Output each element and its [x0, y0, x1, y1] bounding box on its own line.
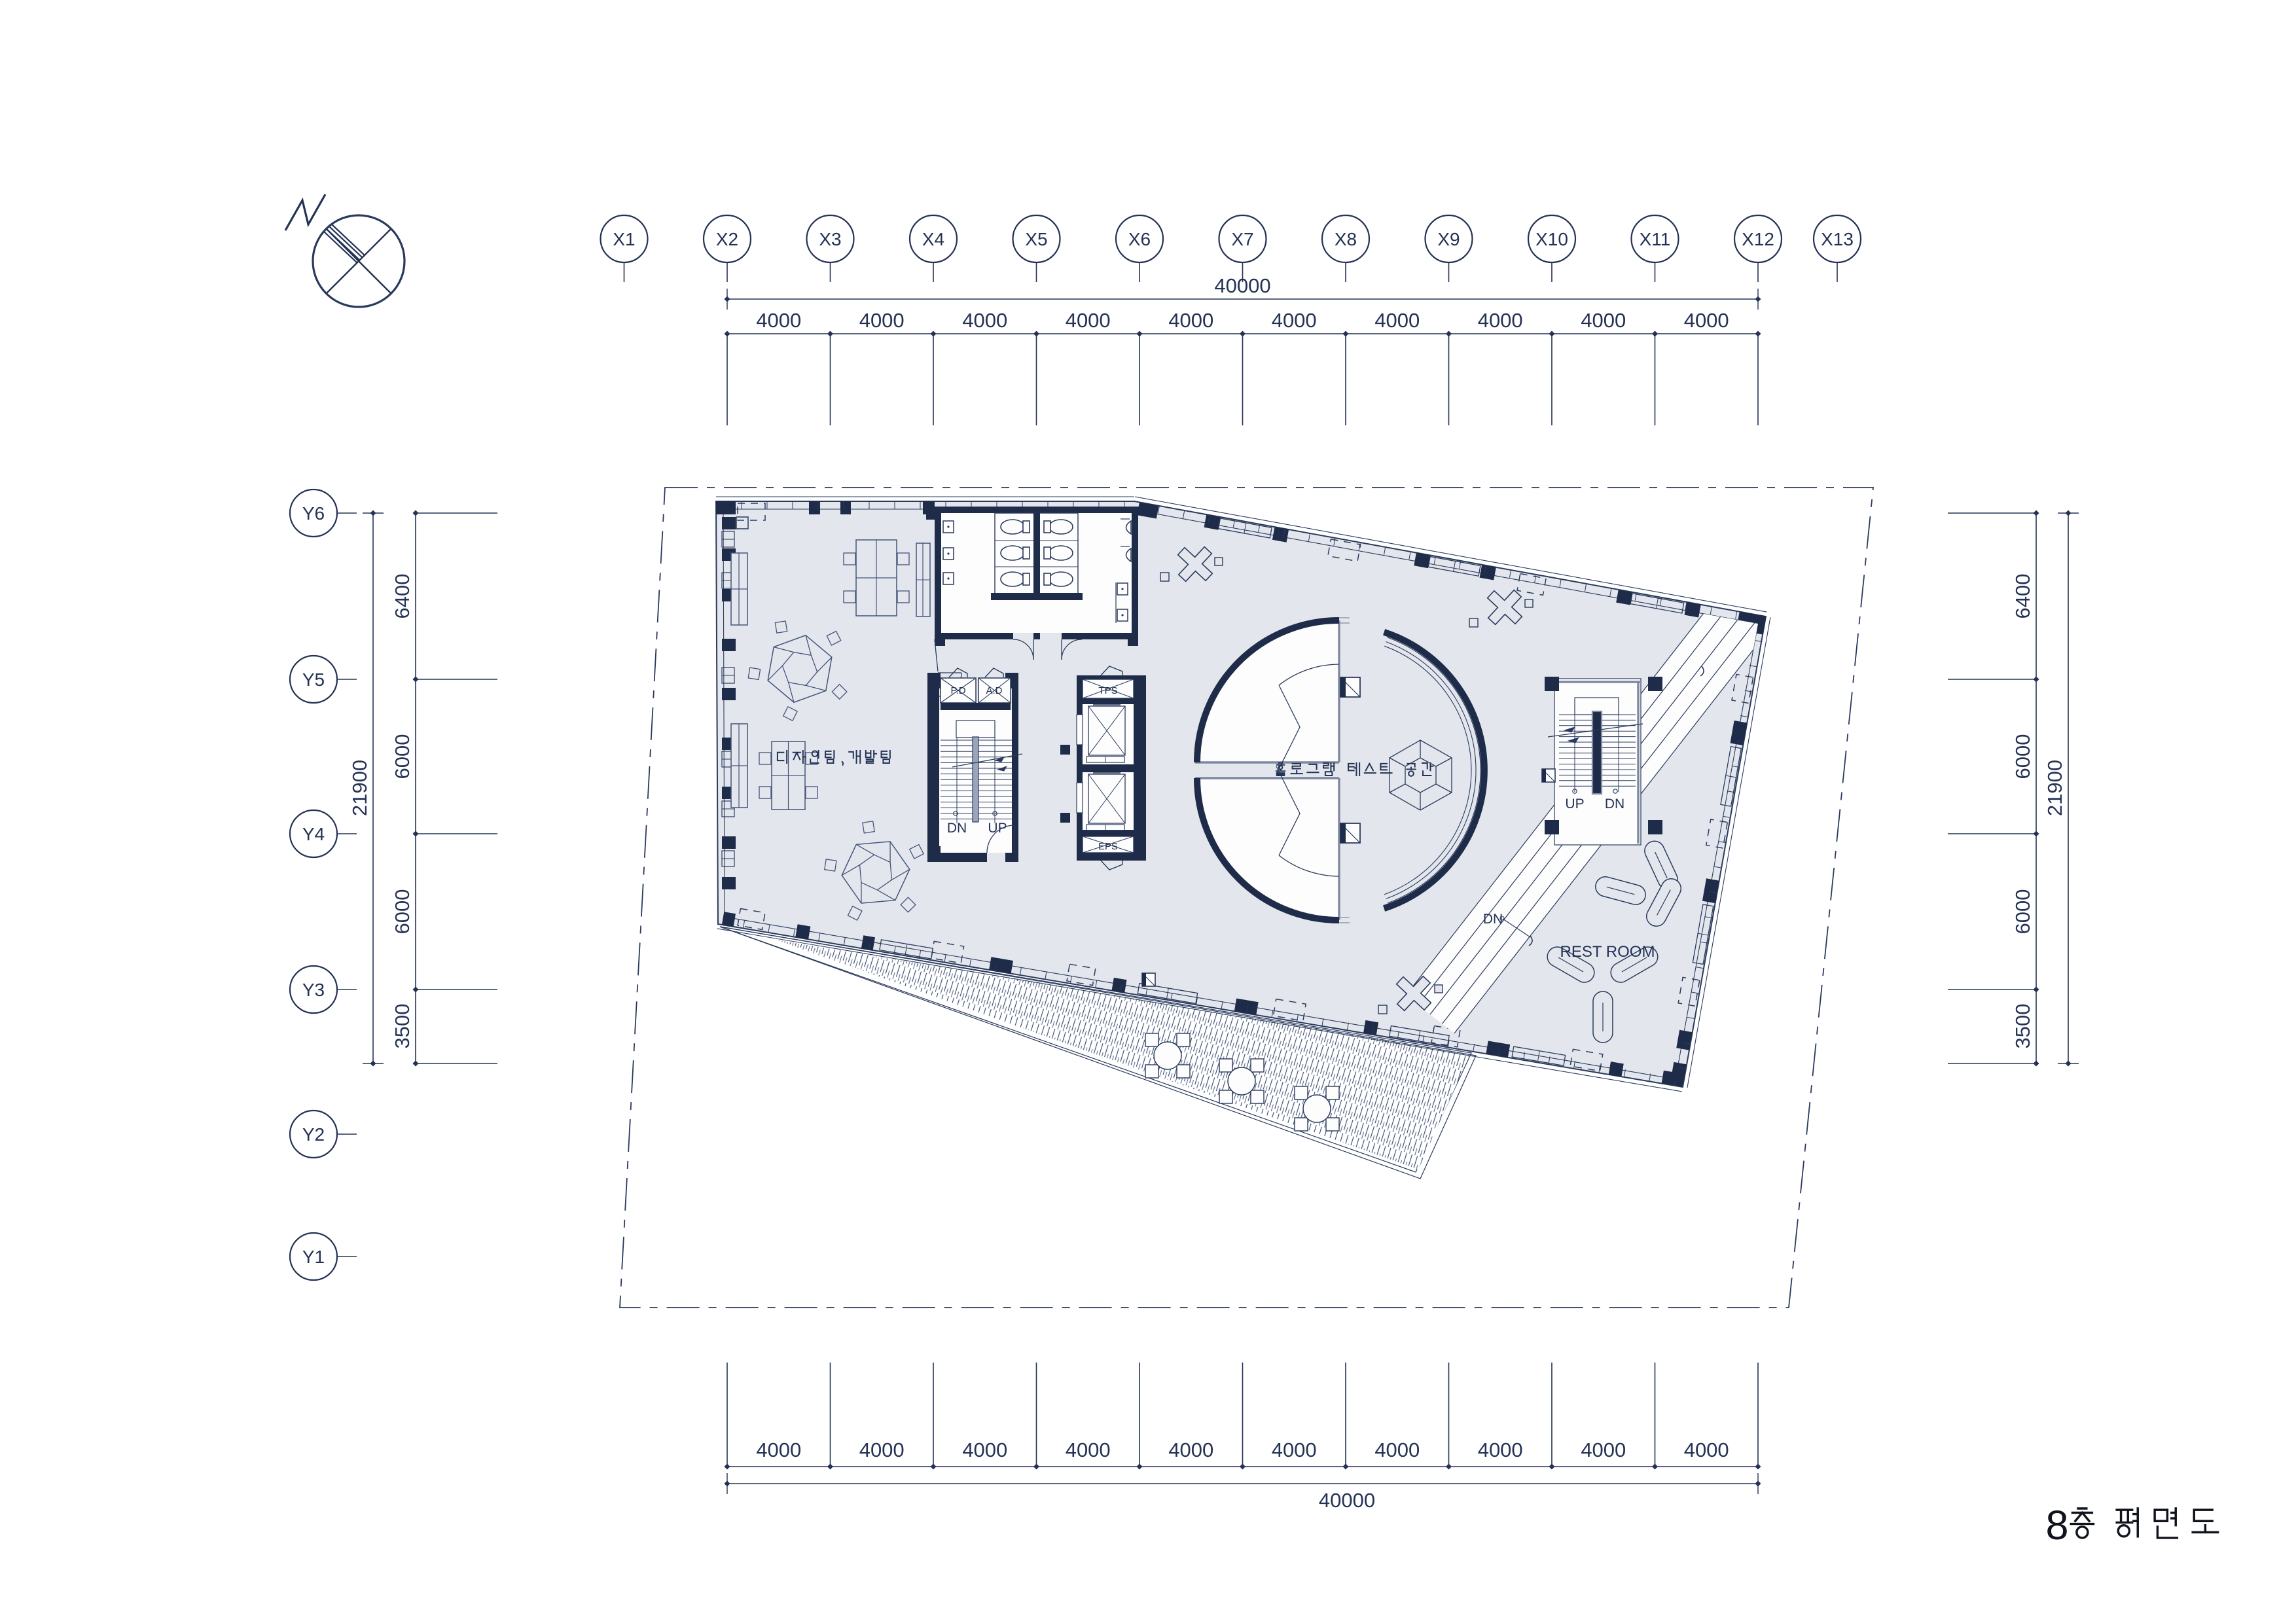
svg-text:X7: X7	[1231, 229, 1253, 249]
svg-text:Y2: Y2	[302, 1124, 325, 1145]
svg-text:4000: 4000	[1478, 309, 1523, 332]
svg-text:4000: 4000	[756, 309, 801, 332]
svg-text:4000: 4000	[962, 309, 1007, 332]
svg-text:X10: X10	[1535, 229, 1568, 249]
svg-text:TPS: TPS	[1098, 685, 1117, 696]
svg-text:4000: 4000	[859, 309, 905, 332]
svg-text:4000: 4000	[756, 1438, 801, 1461]
svg-text:6000: 6000	[391, 889, 414, 935]
svg-text:8: 8	[2045, 1503, 2068, 1548]
svg-text:6000: 6000	[2011, 889, 2034, 935]
svg-text:6400: 6400	[2011, 574, 2034, 619]
svg-text:21900: 21900	[2043, 760, 2066, 816]
svg-text:4000: 4000	[1374, 309, 1420, 332]
svg-text:X13: X13	[1821, 229, 1854, 249]
svg-text:3500: 3500	[2011, 1004, 2034, 1049]
svg-text:4000: 4000	[1066, 1438, 1111, 1461]
svg-text:4000: 4000	[1684, 1438, 1729, 1461]
svg-text:X11: X11	[1640, 229, 1671, 249]
svg-text:X12: X12	[1742, 229, 1774, 249]
svg-text:4000: 4000	[1168, 309, 1213, 332]
svg-text:4000: 4000	[1581, 1438, 1626, 1461]
svg-text:X9: X9	[1437, 229, 1460, 249]
svg-text:REST ROOM: REST ROOM	[1560, 943, 1655, 961]
svg-text:X2: X2	[716, 229, 738, 249]
svg-text:40000: 40000	[1214, 274, 1270, 297]
svg-text:A.D: A.D	[986, 685, 1002, 696]
svg-text:X1: X1	[613, 229, 635, 249]
svg-text:UP: UP	[988, 821, 1007, 836]
svg-text:Y4: Y4	[302, 824, 325, 844]
svg-text:6400: 6400	[391, 574, 414, 619]
svg-text:4000: 4000	[859, 1438, 905, 1461]
svg-text:P.D: P.D	[950, 685, 965, 696]
svg-text:X3: X3	[819, 229, 841, 249]
svg-text:4000: 4000	[1272, 1438, 1317, 1461]
svg-text:DN: DN	[1483, 912, 1503, 927]
svg-text:4000: 4000	[1684, 309, 1729, 332]
svg-text:Y5: Y5	[302, 669, 325, 690]
svg-text:X4: X4	[922, 229, 944, 249]
svg-text:UP: UP	[1565, 796, 1584, 811]
svg-text:4000: 4000	[1478, 1438, 1523, 1461]
svg-text:X5: X5	[1025, 229, 1047, 249]
svg-text:6000: 6000	[391, 734, 414, 779]
svg-text:DN: DN	[947, 821, 967, 836]
svg-text:Y6: Y6	[302, 503, 325, 524]
svg-text:4000: 4000	[1374, 1438, 1420, 1461]
svg-text:4000: 4000	[1272, 309, 1317, 332]
svg-text:Y3: Y3	[302, 980, 325, 1000]
svg-text:4000: 4000	[1581, 309, 1626, 332]
svg-text:21900: 21900	[348, 760, 371, 816]
svg-text:X6: X6	[1128, 229, 1151, 249]
svg-text:X8: X8	[1335, 229, 1357, 249]
svg-text:4000: 4000	[962, 1438, 1007, 1461]
svg-text:4000: 4000	[1066, 309, 1111, 332]
svg-text:Y1: Y1	[302, 1247, 325, 1267]
svg-text:6000: 6000	[2011, 734, 2034, 779]
svg-text:4000: 4000	[1168, 1438, 1213, 1461]
svg-text:DN: DN	[1605, 796, 1624, 811]
svg-text:3500: 3500	[391, 1004, 414, 1049]
svg-text:40000: 40000	[1319, 1489, 1375, 1512]
svg-text:EPS: EPS	[1098, 841, 1118, 852]
